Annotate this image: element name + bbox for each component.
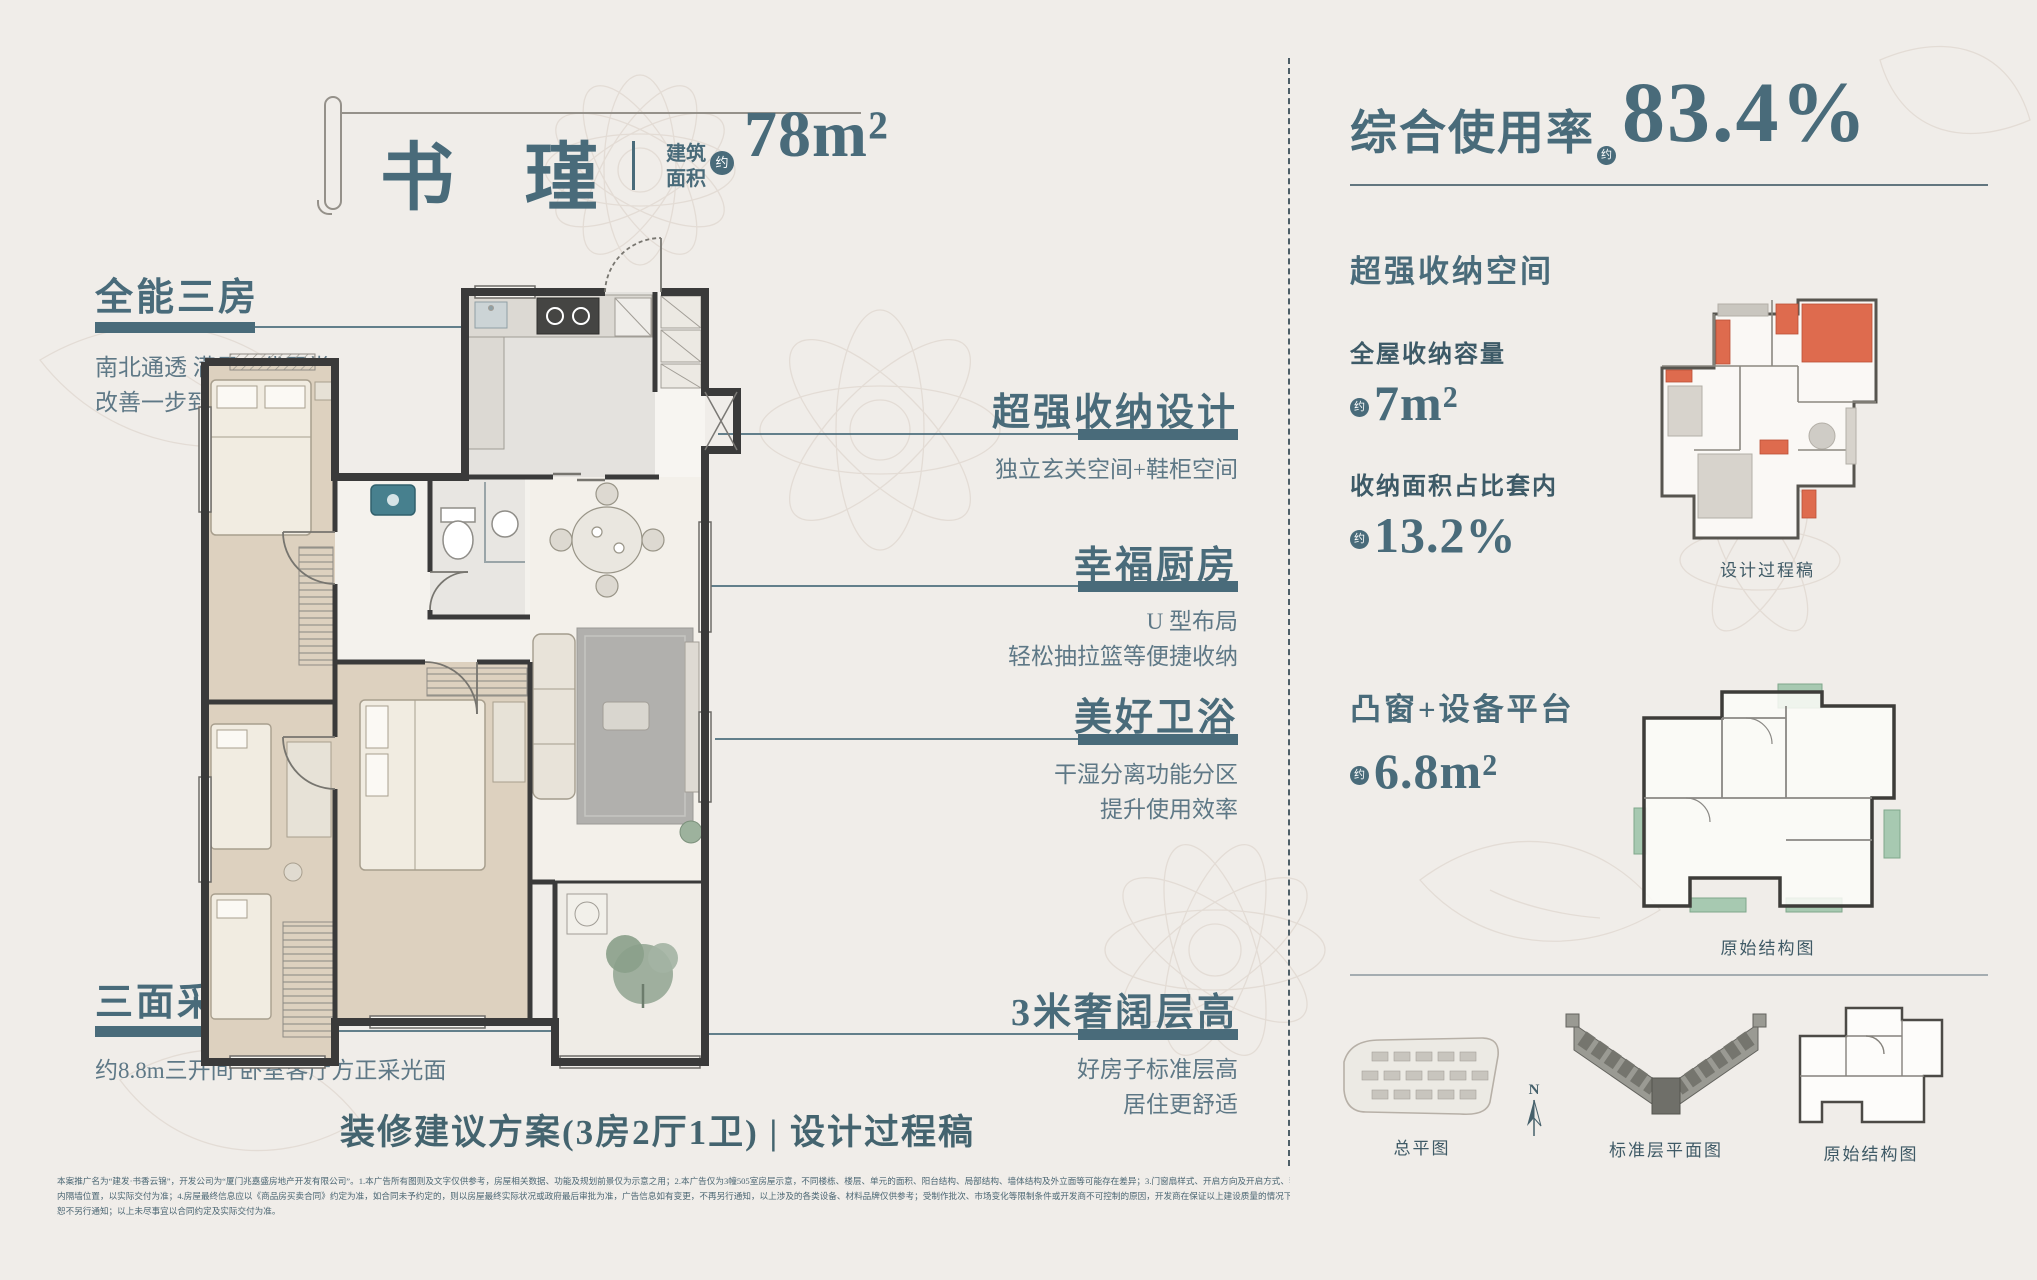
site-plan-caption: 总平图 (1332, 1134, 1512, 1159)
desc-line: 干湿分离功能分区 (938, 757, 1238, 792)
desc-line: 好房子标准层高 (938, 1052, 1238, 1087)
mini-plan-original-structure (1626, 680, 1910, 926)
brochure-page: 书 瑾 建筑 面积 约 78m² 全能三房 南北通透 满足三代同堂 改善一步到位… (0, 0, 2037, 1280)
desc-line: U 型布局 (938, 604, 1238, 639)
storage-ratio-value: 13.2% (1374, 506, 1517, 564)
bay-section-heading: 凸窗+设备平台 (1350, 684, 1575, 729)
main-floor-plan (175, 232, 765, 1077)
original-structure-small-plan (1790, 996, 1952, 1130)
usage-rate-label: 综合使用率 (1350, 94, 1595, 163)
panel-divider (1288, 58, 1290, 1166)
approx-badge-icon: 约 (1597, 146, 1616, 165)
desc-line: 居住更舒适 (938, 1087, 1238, 1122)
legal-disclaimer: 本案推广名为“建发·书香云锦”，开发公司为“厦门兆嘉盛房地产开发有限公司”。1.… (57, 1174, 1290, 1218)
mini-plan-original-structure-caption: 原始结构图 (1626, 934, 1910, 959)
scroll-rod-ornament (324, 96, 342, 210)
standard-floor-plan (1560, 986, 1772, 1128)
area-label-line1: 建筑 (666, 142, 706, 167)
storage-ratio-label: 收纳面积占比套内 (1350, 466, 1558, 501)
callout-storage-design-leader (718, 433, 1078, 435)
storage-capacity-value: 7m² (1374, 374, 1459, 432)
compass-n-label: N (1529, 1082, 1540, 1098)
area-label: 建筑 面积 (666, 142, 706, 192)
mini-plan-design-draft (1650, 290, 1885, 548)
area-value: 78m² (744, 97, 889, 173)
usage-rate-value: 83.4% (1622, 62, 1869, 162)
callout-bathroom-desc: 干湿分离功能分区 提升使用效率 (938, 757, 1238, 827)
approx-badge-icon: 约 (1350, 766, 1369, 785)
original-structure-small-caption: 原始结构图 (1790, 1140, 1952, 1165)
callout-ceiling-height-bar (1078, 1029, 1238, 1040)
desc-line: 提升使用效率 (938, 792, 1238, 827)
scroll-curl-ornament (317, 200, 332, 215)
callout-bathroom-leader (715, 738, 1078, 740)
callout-storage-design-title: 超强收纳设计 (938, 381, 1238, 436)
title-divider (632, 141, 635, 190)
north-compass-icon: N (1520, 1080, 1548, 1140)
storage-capacity-label: 全屋收纳容量 (1350, 334, 1506, 369)
plan-heading: 装修建议方案(3房2厅1卫) | 设计过程稿 (340, 1104, 975, 1155)
disclaimer-line: 恕不另行通知；以上未尽事宜以合同约定及实际交付为准。 (57, 1204, 1290, 1219)
section-rule-bottom (1350, 974, 1988, 976)
desc-line: 轻松抽拉篮等便捷收纳 (938, 639, 1238, 674)
callout-ceiling-height-desc: 好房子标准层高 居住更舒适 (938, 1052, 1238, 1122)
callout-storage-design-desc: 独立玄关空间+鞋柜空间 (938, 452, 1238, 487)
callout-storage-design-bar (1078, 429, 1238, 440)
disclaimer-line: 内隔墙位置，以实际交付为准；4.房屋最终信息应以《商品房买卖合同》约定为准，如合… (57, 1189, 1290, 1204)
callout-kitchen-bar (1078, 581, 1238, 592)
callout-bathroom-bar (1078, 734, 1238, 745)
callout-bathroom-title: 美好卫浴 (938, 686, 1238, 741)
unit-name-title: 书 瑾 (380, 118, 625, 225)
approx-badge-icon: 约 (1350, 398, 1369, 417)
area-label-line2: 面积 (666, 167, 706, 192)
callout-kitchen-desc: U 型布局 轻松抽拉篮等便捷收纳 (938, 604, 1238, 674)
standard-floor-plan-caption: 标准层平面图 (1560, 1136, 1772, 1161)
approx-badge-icon: 约 (1350, 530, 1369, 549)
storage-section-heading: 超强收纳空间 (1350, 246, 1554, 291)
site-plan (1332, 1028, 1512, 1124)
bay-area-value: 6.8m² (1374, 742, 1498, 800)
foyer-shoe-cabinet (661, 296, 701, 388)
callout-ceiling-height-title: 3米奢阔层高 (938, 981, 1238, 1036)
disclaimer-line: 本案推广名为“建发·书香云锦”，开发公司为“厦门兆嘉盛房地产开发有限公司”。1.… (57, 1174, 1290, 1189)
mini-plan-design-draft-caption: 设计过程稿 (1650, 556, 1885, 581)
section-rule-top (1350, 184, 1988, 186)
approx-badge-icon: 约 (710, 151, 734, 175)
desc-line: 独立玄关空间+鞋柜空间 (938, 452, 1238, 487)
